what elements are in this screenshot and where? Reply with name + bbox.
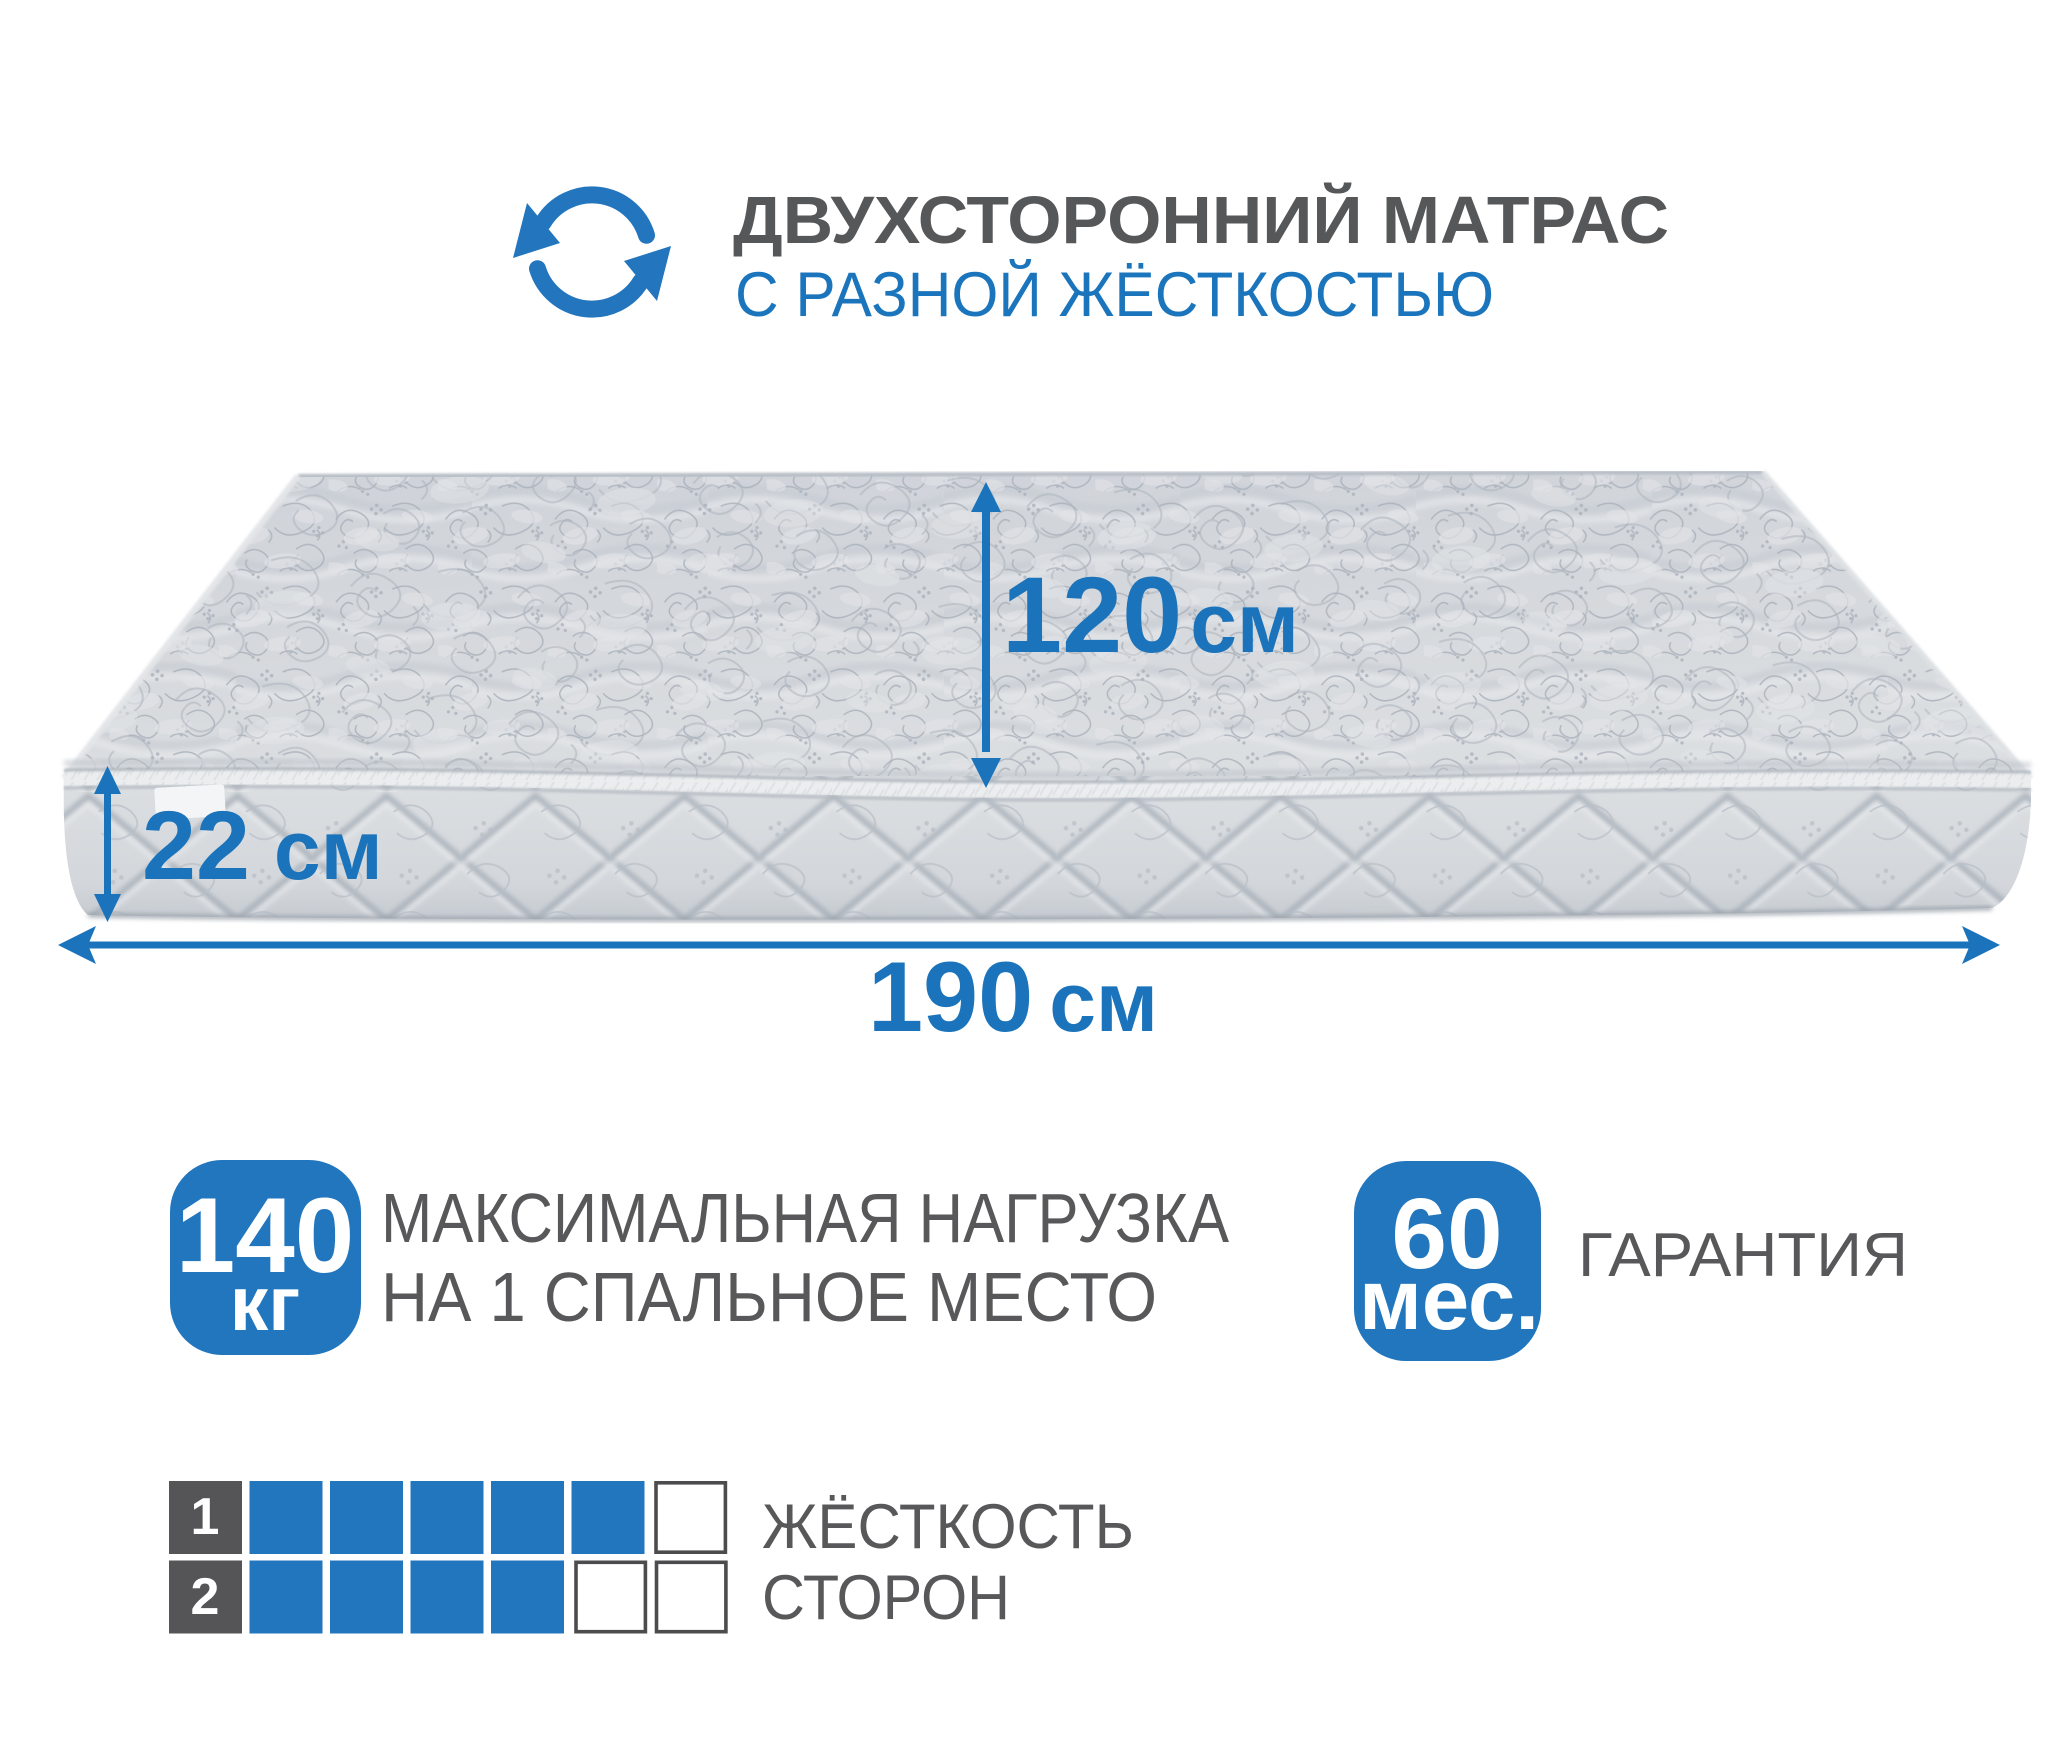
svg-text:ДВУХСТОРОННИЙ МАТРАС: ДВУХСТОРОННИЙ МАТРАС	[733, 182, 1669, 258]
svg-text:ЖЁСТКОСТЬ: ЖЁСТКОСТЬ	[762, 1492, 1134, 1562]
svg-text:кг: кг	[230, 1261, 301, 1347]
svg-text:МАКСИМАЛЬНАЯ НАГРУЗКА: МАКСИМАЛЬНАЯ НАГРУЗКА	[381, 1179, 1229, 1257]
svg-text:НА 1 СПАЛЬНОЕ МЕСТО: НА 1 СПАЛЬНОЕ МЕСТО	[381, 1258, 1157, 1336]
svg-text:2: 2	[191, 1568, 220, 1626]
svg-text:ГАРАНТИЯ: ГАРАНТИЯ	[1578, 1221, 1908, 1290]
svg-text:С РАЗНОЙ ЖЁСТКОСТЬЮ: С РАЗНОЙ ЖЁСТКОСТЬЮ	[735, 259, 1494, 330]
svg-text:мес.: мес.	[1359, 1253, 1539, 1348]
svg-text:СТОРОН: СТОРОН	[762, 1563, 1010, 1633]
svg-text:190см: 190см	[868, 941, 1158, 1052]
svg-text:1: 1	[191, 1488, 220, 1546]
